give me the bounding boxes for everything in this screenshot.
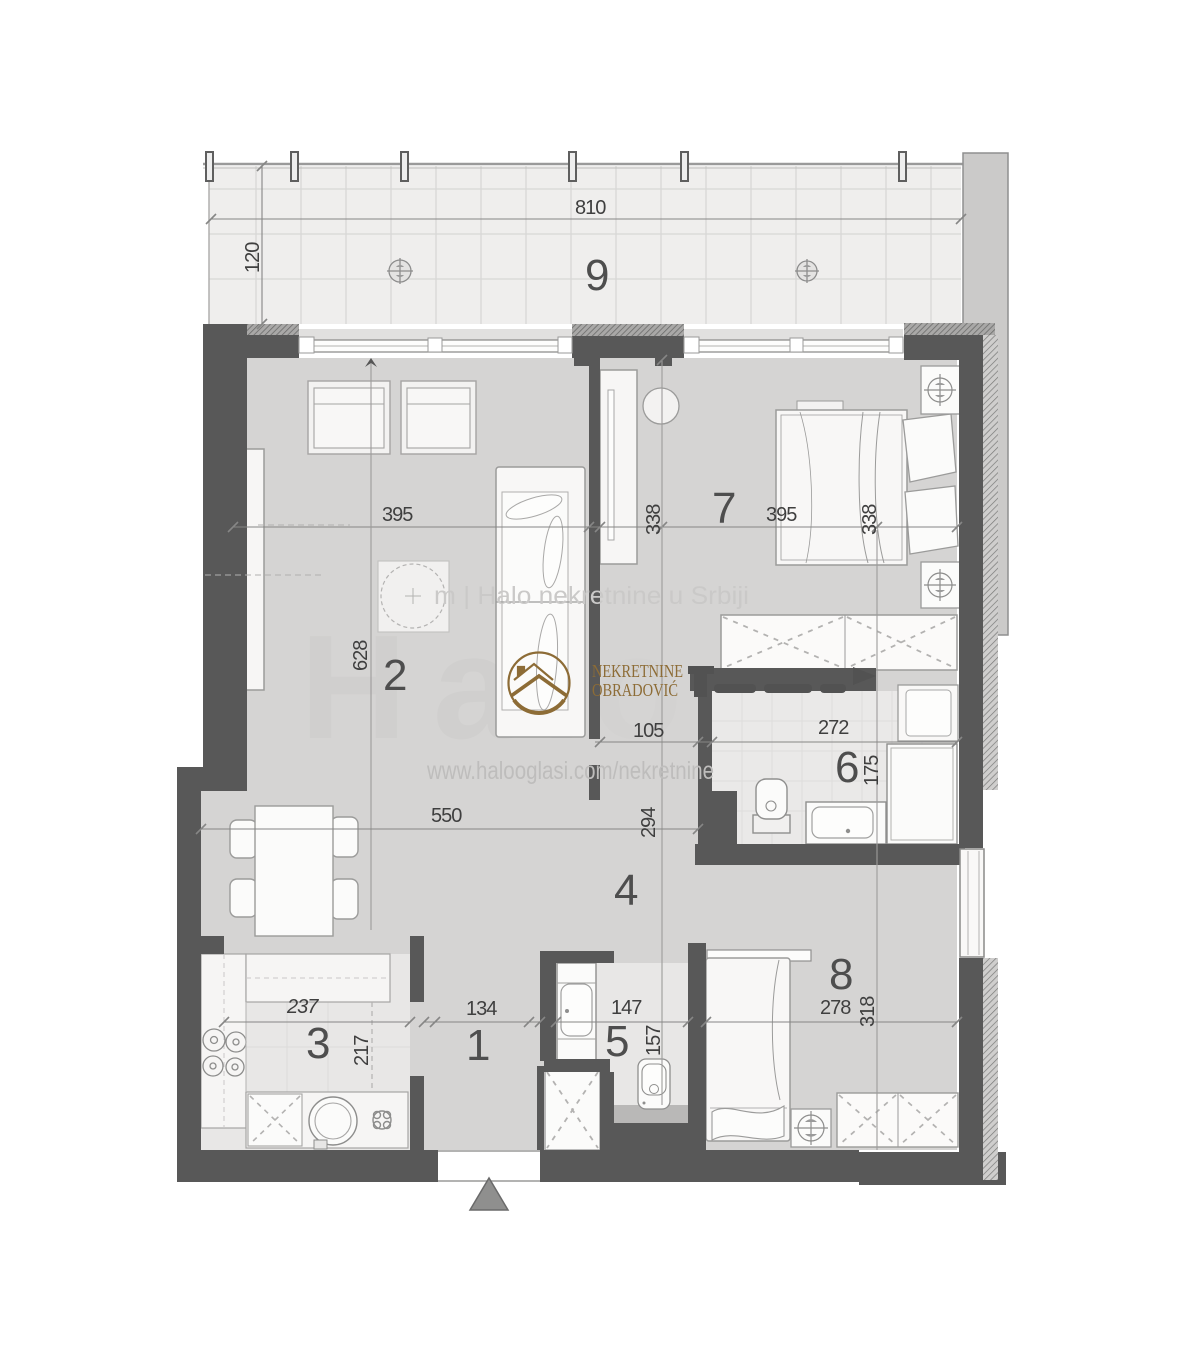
svg-text:338: 338 [859, 504, 881, 535]
svg-text:628: 628 [350, 640, 372, 671]
svg-text:120: 120 [242, 242, 264, 273]
svg-text:147: 147 [611, 997, 642, 1019]
svg-text:318: 318 [857, 996, 879, 1027]
svg-text:NEKRETNINE: NEKRETNINE [592, 661, 683, 681]
svg-text:1: 1 [466, 1021, 490, 1070]
svg-text:395: 395 [382, 504, 413, 526]
svg-text:272: 272 [818, 717, 849, 739]
svg-text:134: 134 [466, 998, 497, 1020]
svg-text:8: 8 [829, 950, 853, 999]
svg-text:550: 550 [431, 805, 462, 827]
svg-text:395: 395 [766, 504, 797, 526]
svg-text:810: 810 [575, 197, 606, 219]
svg-text:OBRADOVIĆ: OBRADOVIĆ [592, 680, 678, 700]
svg-text:5: 5 [605, 1017, 629, 1066]
svg-text:294: 294 [638, 807, 660, 838]
svg-text:157: 157 [643, 1025, 665, 1056]
svg-text:175: 175 [861, 755, 883, 786]
svg-text:7: 7 [712, 484, 736, 533]
svg-text:278: 278 [820, 997, 851, 1019]
svg-text:www.halooglasi.com/nekretnine: www.halooglasi.com/nekretnine [426, 757, 714, 785]
svg-text:3: 3 [306, 1019, 330, 1068]
svg-text:338: 338 [643, 504, 665, 535]
svg-text:2: 2 [383, 651, 407, 700]
svg-text:m | Halo nekretnine u Srbiji: m | Halo nekretnine u Srbiji [434, 582, 749, 610]
svg-text:9: 9 [585, 251, 609, 300]
svg-text:4: 4 [614, 866, 638, 915]
svg-text:105: 105 [633, 720, 664, 742]
svg-text:217: 217 [351, 1035, 373, 1066]
svg-text:6: 6 [835, 743, 859, 792]
svg-text:237: 237 [286, 996, 319, 1018]
